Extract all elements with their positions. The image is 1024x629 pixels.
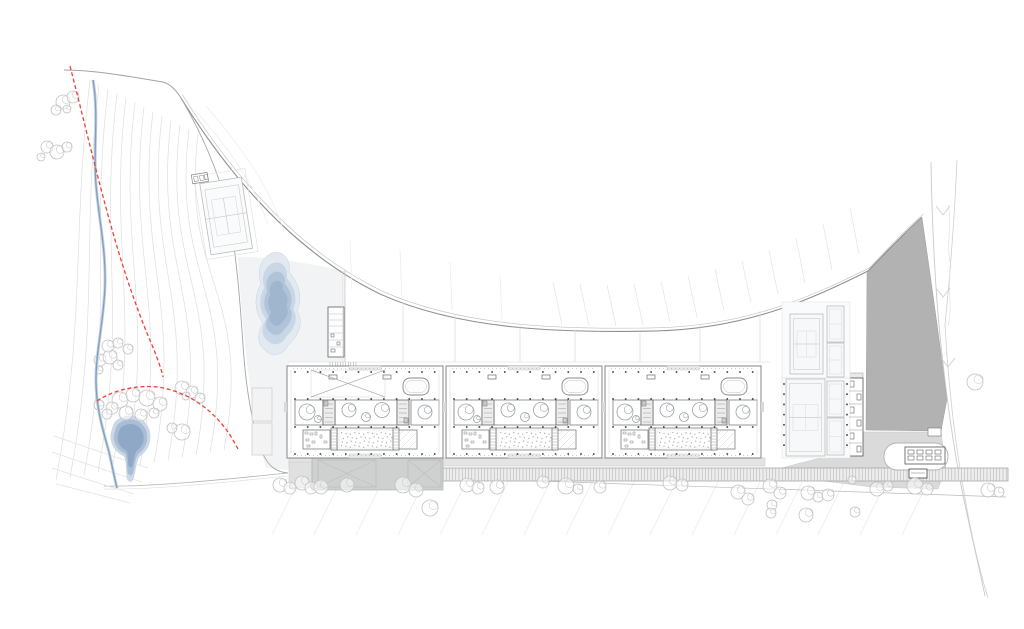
furniture-stipple [692, 436, 693, 437]
furniture-stipple [531, 433, 532, 434]
furniture-stipple [522, 447, 523, 448]
column-dot [593, 426, 595, 428]
column-dot [320, 398, 322, 400]
pond-lower-ring [118, 424, 144, 467]
furniture-stipple [365, 437, 366, 438]
furniture-stipple [514, 441, 515, 442]
tree [37, 153, 45, 161]
furniture-stipple [342, 441, 343, 442]
furniture-stipple [548, 447, 549, 448]
furniture-stipple [663, 433, 664, 434]
column-dot [688, 371, 690, 373]
tree [676, 479, 688, 491]
block-part [729, 400, 757, 425]
furniture-stipple [363, 434, 364, 435]
furniture-stipple [548, 434, 549, 435]
furniture-stipple [545, 442, 546, 443]
column-dot [542, 371, 544, 373]
column-dot [383, 426, 385, 428]
column-dot [676, 371, 678, 373]
terrain-diagonal [524, 478, 552, 535]
site-plan-svg [0, 0, 1024, 629]
site-boundary-red-main [70, 66, 163, 377]
existing-building [866, 218, 947, 431]
column-dot [625, 371, 627, 373]
tree [126, 388, 140, 402]
tree [573, 484, 583, 494]
terrain-tick [400, 250, 402, 300]
furniture-stipple [528, 438, 529, 439]
furniture-stipple [696, 437, 697, 438]
column-dot [294, 453, 296, 455]
furniture-stipple [373, 442, 374, 443]
furniture-stipple [367, 432, 368, 433]
column-dot [396, 453, 398, 455]
block-part [411, 400, 439, 425]
furniture-stipple [549, 441, 550, 442]
furniture-stipple [668, 447, 669, 448]
furniture-stipple [345, 433, 346, 434]
furniture-stipple [382, 441, 383, 442]
column-dot [453, 371, 455, 373]
furniture-stipple [390, 441, 391, 442]
column-dot [345, 453, 347, 455]
slope-hatch [715, 269, 724, 311]
furniture-stipple [703, 446, 704, 447]
column-dot [714, 371, 716, 373]
furniture-stipple [541, 441, 542, 442]
furniture-stipple [659, 445, 660, 446]
column-dot [846, 424, 848, 426]
column-dot [396, 426, 398, 428]
furniture-stipple [705, 436, 706, 437]
column-dot [370, 453, 372, 455]
furniture-stipple [356, 438, 357, 439]
tree [195, 393, 205, 403]
column-dot [568, 371, 570, 373]
terrain-tick [350, 240, 352, 290]
column-dot [396, 398, 398, 400]
block-part [642, 401, 646, 406]
column-dot [421, 398, 423, 400]
column-dot [358, 453, 360, 455]
column-dot [453, 398, 455, 400]
furniture-stipple [685, 432, 686, 433]
furniture-stipple [360, 442, 361, 443]
kiosk [909, 469, 927, 478]
block-part [602, 402, 605, 412]
column-dot [701, 371, 703, 373]
column-dot [663, 453, 665, 455]
column-dot [517, 453, 519, 455]
furniture-stipple [346, 442, 347, 443]
column-dot [638, 426, 640, 428]
tree [314, 480, 328, 494]
residential-block [443, 366, 605, 458]
furniture-stipple [385, 433, 386, 434]
tree [62, 142, 72, 152]
column-dot [517, 398, 519, 400]
column-dot [409, 398, 411, 400]
furniture-stipple [546, 436, 547, 437]
right-terrain-line [948, 205, 951, 326]
column-dot [846, 444, 848, 446]
column-dot [739, 453, 741, 455]
column-dot [453, 453, 455, 455]
furniture-stipple [504, 446, 505, 447]
column-dot [650, 371, 652, 373]
furniture-stipple [544, 446, 545, 447]
furniture-stipple [355, 441, 356, 442]
furniture-stipple [511, 437, 512, 438]
furniture-stipple [354, 445, 355, 446]
furniture-stipple [354, 432, 355, 433]
furniture-stipple [381, 445, 382, 446]
column-dot [307, 371, 309, 373]
tree [742, 493, 754, 505]
tree [799, 508, 813, 522]
column-dot [421, 426, 423, 428]
padel-court [827, 343, 844, 377]
column-dot [593, 453, 595, 455]
column-dot [846, 393, 848, 395]
column-dot [370, 398, 372, 400]
furniture-stipple [695, 441, 696, 442]
furniture-stipple [699, 445, 700, 446]
furniture-stipple [359, 433, 360, 434]
column-dot [783, 393, 785, 395]
column-dot [529, 426, 531, 428]
column-dot [542, 453, 544, 455]
tree [123, 344, 133, 354]
column-dot [307, 426, 309, 428]
furniture-stipple [519, 442, 520, 443]
column-dot [453, 426, 455, 428]
column-dot [294, 371, 296, 373]
column-dot [529, 398, 531, 400]
site-plan-page [0, 0, 1024, 629]
tree [490, 480, 504, 494]
column-dot [846, 434, 848, 436]
furniture-stipple [389, 447, 390, 448]
contour-line [168, 121, 191, 458]
column-dot [783, 434, 785, 436]
furniture-stipple [708, 441, 709, 442]
column-dot [434, 453, 436, 455]
tree [537, 476, 549, 488]
column-dot [479, 426, 481, 428]
column-dot [612, 398, 614, 400]
furniture-stipple [509, 434, 510, 435]
furniture-stipple [505, 442, 506, 443]
block-part [284, 402, 287, 412]
slope-hatch [661, 281, 670, 322]
furniture-stipple [685, 445, 686, 446]
furniture-stipple [513, 445, 514, 446]
residential-blocks-layer [284, 366, 764, 458]
column-dot [421, 371, 423, 373]
column-dot [345, 398, 347, 400]
column-dot [332, 371, 334, 373]
column-dot [320, 426, 322, 428]
furniture-stipple [707, 447, 708, 448]
column-dot [491, 453, 493, 455]
block-part [761, 402, 764, 412]
block-part [508, 454, 540, 458]
furniture-stipple [519, 436, 520, 437]
column-dot [846, 404, 848, 406]
column-dot [663, 426, 665, 428]
furniture-stipple [709, 437, 710, 438]
furniture-stipple [690, 433, 691, 434]
furniture-stipple [672, 432, 673, 433]
tree [848, 476, 856, 484]
furniture-stipple [504, 433, 505, 434]
furniture-stipple [663, 446, 664, 447]
tree [472, 482, 484, 494]
slope-hatch [553, 282, 562, 325]
corner-arc-4 [56, 484, 130, 503]
column-dot [307, 398, 309, 400]
furniture-stipple [682, 441, 683, 442]
tree [102, 409, 112, 419]
furniture-stipple [510, 441, 511, 442]
slope-hatch [850, 208, 859, 254]
column-dot [783, 444, 785, 446]
tree [113, 360, 123, 370]
block-part [508, 366, 540, 370]
column-dot [783, 404, 785, 406]
furniture-stipple [372, 446, 373, 447]
column-dot [676, 426, 678, 428]
column-dot [612, 371, 614, 373]
furniture-stipple [341, 445, 342, 446]
column-dot [701, 426, 703, 428]
furniture-stipple [668, 434, 669, 435]
tree [921, 483, 933, 495]
tree [883, 481, 893, 491]
furniture-stipple [677, 433, 678, 434]
tree [409, 483, 423, 497]
boundary-overlay-layer [70, 66, 238, 488]
tree [822, 489, 834, 501]
furniture-stipple [341, 432, 342, 433]
column-dot [332, 453, 334, 455]
furniture-stipple [661, 438, 662, 439]
furniture-stipple [672, 445, 673, 446]
furniture-stipple [664, 442, 665, 443]
furniture-stipple [381, 432, 382, 433]
column-dot [358, 371, 360, 373]
furniture-stipple [500, 432, 501, 433]
furniture-stipple [376, 434, 377, 435]
column-dot [568, 453, 570, 455]
furniture-stipple [376, 447, 377, 448]
block-part [483, 401, 487, 406]
column-dot [504, 453, 506, 455]
padel-court [827, 381, 844, 417]
column-dot [701, 453, 703, 455]
slope-hatch [634, 284, 643, 325]
furniture-stipple [540, 432, 541, 433]
furniture-stipple [363, 447, 364, 448]
terrain-diagonal [818, 478, 846, 535]
column-dot [542, 426, 544, 428]
tree [813, 492, 823, 502]
furniture-stipple [501, 441, 502, 442]
terrain-diagonal [608, 478, 636, 535]
furniture-stipple [540, 445, 541, 446]
furniture-stipple [352, 437, 353, 438]
parking-rect-1 [252, 388, 272, 421]
column-dot [409, 426, 411, 428]
tree [284, 482, 296, 494]
column-dot [529, 371, 531, 373]
column-dot [688, 426, 690, 428]
padel-court [827, 306, 844, 342]
column-dot [345, 371, 347, 373]
column-dot [580, 426, 582, 428]
block-part [443, 402, 446, 412]
furniture-stipple [360, 436, 361, 437]
column-dot [638, 453, 640, 455]
furniture-stipple [694, 447, 695, 448]
furniture-stipple [550, 437, 551, 438]
terrain-diagonal [776, 478, 804, 535]
column-dot [568, 426, 570, 428]
block-part [324, 401, 328, 406]
pool-house [328, 307, 344, 357]
furniture-stipple [524, 437, 525, 438]
corner-arc-3 [52, 468, 134, 494]
column-dot [676, 398, 678, 400]
tree [558, 478, 574, 494]
column-dot [358, 426, 360, 428]
column-dot [466, 371, 468, 373]
furniture-stipple [687, 438, 688, 439]
slope-chevron-1 [936, 206, 950, 215]
furniture-stipple [533, 436, 534, 437]
column-dot [752, 453, 754, 455]
furniture-stipple [368, 441, 369, 442]
top-edge [64, 70, 181, 98]
column-dot [434, 426, 436, 428]
column-dot [727, 426, 729, 428]
tree [119, 406, 133, 420]
column-dot [466, 426, 468, 428]
column-dot [739, 371, 741, 373]
column-dot [294, 426, 296, 428]
column-dot [491, 398, 493, 400]
furniture-stipple [690, 446, 691, 447]
column-dot [714, 398, 716, 400]
column-dot [504, 371, 506, 373]
furniture-stipple [674, 438, 675, 439]
furniture-stipple [382, 438, 383, 439]
furniture-stipple [351, 441, 352, 442]
furniture-stipple [513, 432, 514, 433]
block-part [570, 400, 598, 425]
furniture-stipple [691, 442, 692, 443]
furniture-stipple [678, 442, 679, 443]
furniture-stipple [704, 442, 705, 443]
column-dot [783, 424, 785, 426]
column-dot [383, 371, 385, 373]
column-dot [383, 398, 385, 400]
furniture-stipple [681, 434, 682, 435]
tree [422, 500, 438, 516]
tree [766, 508, 776, 518]
column-dot [332, 426, 334, 428]
column-dot [638, 371, 640, 373]
column-dot [580, 398, 582, 400]
furniture-stipple [535, 434, 536, 435]
column-dot [409, 371, 411, 373]
tree [149, 408, 159, 418]
column-dot [568, 398, 570, 400]
slope-hatch [796, 238, 805, 283]
column-dot [504, 398, 506, 400]
column-dot [358, 398, 360, 400]
podium-dark [312, 457, 443, 490]
column-dot [650, 426, 652, 428]
furniture-stipple [703, 433, 704, 434]
column-dot [727, 398, 729, 400]
terrain-tick [500, 275, 502, 320]
furniture-stipple [369, 438, 370, 439]
column-dot [517, 426, 519, 428]
tree [907, 478, 923, 494]
column-dot [294, 398, 296, 400]
column-dot [650, 398, 652, 400]
furniture-stipple [681, 447, 682, 448]
furniture-stipple [670, 437, 671, 438]
column-dot [396, 371, 398, 373]
column-dot [593, 398, 595, 400]
slope-hatch [742, 261, 751, 303]
tree [774, 487, 786, 499]
furniture-stipple [700, 438, 701, 439]
furniture-stipple [347, 436, 348, 437]
furniture-stipple [699, 432, 700, 433]
column-dot [612, 453, 614, 455]
furniture-stipple [391, 437, 392, 438]
column-dot [688, 453, 690, 455]
block-part [349, 366, 381, 370]
column-dot [370, 426, 372, 428]
furniture-stipple [372, 433, 373, 434]
column-dot [663, 371, 665, 373]
sports-courts-layer [783, 306, 848, 456]
column-dot [701, 398, 703, 400]
furniture-stipple [659, 432, 660, 433]
column-dot [714, 426, 716, 428]
column-dot [307, 453, 309, 455]
slope-hatch [823, 224, 832, 270]
column-dot [752, 398, 754, 400]
furniture-stipple [526, 432, 527, 433]
tree [663, 476, 677, 490]
furniture-stipple [389, 434, 390, 435]
column-dot [727, 453, 729, 455]
column-dot [739, 426, 741, 428]
block-part [349, 454, 381, 458]
column-dot [491, 371, 493, 373]
furniture-stipple [669, 441, 670, 442]
furniture-stipple [527, 441, 528, 442]
column-dot [491, 426, 493, 428]
tree [102, 340, 114, 352]
